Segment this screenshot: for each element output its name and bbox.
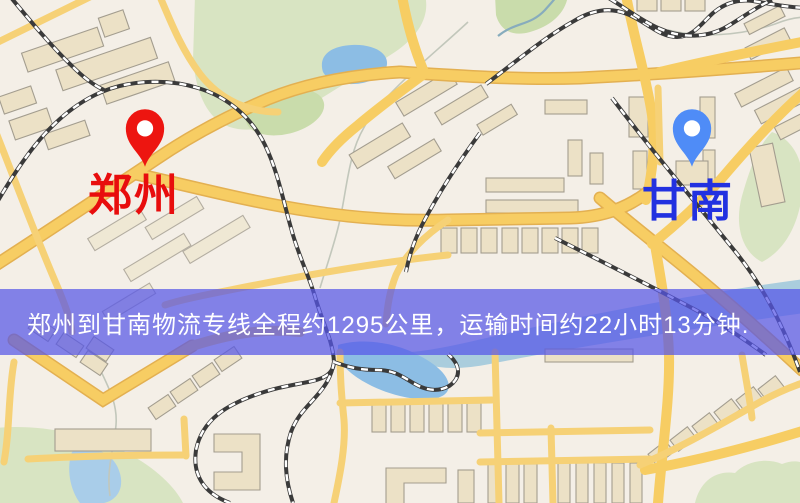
map-background[interactable] — [0, 0, 800, 503]
map-screenshot: 郑州 甘南 郑州到甘南物流专线全程约1295公里，运输时间约22小时13分钟. — [0, 0, 800, 503]
origin-label: 郑州 — [88, 174, 180, 218]
location-pin-icon — [122, 105, 168, 169]
destination-pin[interactable] — [669, 105, 715, 169]
location-pin-icon — [669, 105, 715, 169]
route-info-text: 郑州到甘南物流专线全程约1295公里，运输时间约22小时13分钟. — [27, 305, 749, 340]
origin-pin[interactable] — [122, 105, 168, 169]
route-info-banner: 郑州到甘南物流专线全程约1295公里，运输时间约22小时13分钟. — [0, 289, 800, 355]
destination-label: 甘南 — [642, 180, 734, 224]
